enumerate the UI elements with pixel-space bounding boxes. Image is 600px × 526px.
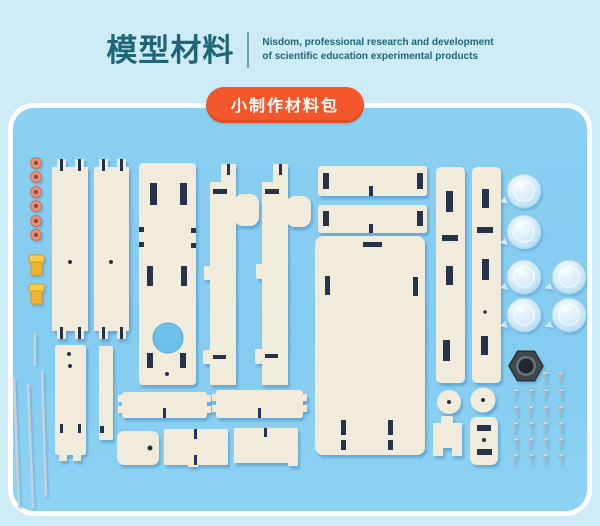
brand-title: 模型材料 xyxy=(106,35,234,66)
kit-badge: 小制作材料包 xyxy=(206,87,364,123)
product-image: 模型材料 Nisdom, professional research and d… xyxy=(0,0,600,526)
tagline-line-2: of scientific education experimental pro… xyxy=(262,50,493,64)
header-divider xyxy=(247,32,249,68)
header: 模型材料 Nisdom, professional research and d… xyxy=(0,0,600,86)
materials-panel xyxy=(8,103,592,516)
tagline-line-1: Nisdom, professional research and develo… xyxy=(262,36,493,50)
brand-tagline: Nisdom, professional research and develo… xyxy=(262,36,493,64)
